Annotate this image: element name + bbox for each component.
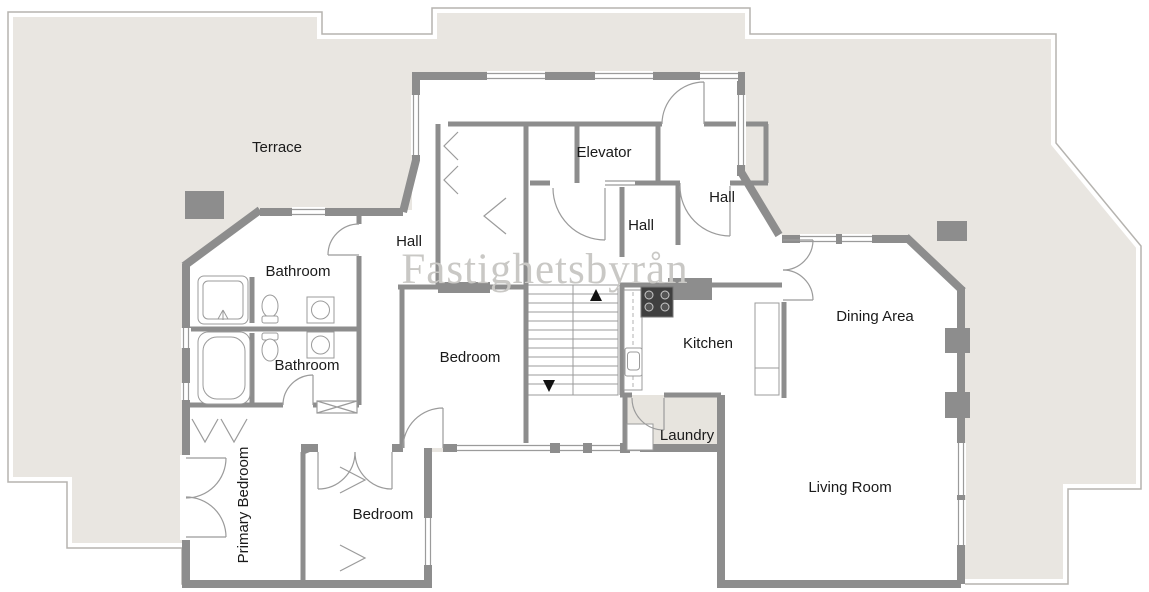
shower bbox=[198, 276, 248, 324]
kitchen-sink bbox=[625, 348, 642, 376]
elevator-door bbox=[605, 179, 635, 187]
room-label-hall-right: Hall bbox=[709, 189, 735, 206]
room-label-elevator: Elevator bbox=[576, 144, 631, 161]
room-label-primary-bedroom: Primary Bedroom bbox=[235, 447, 252, 564]
room-label-bathroom-bottom: Bathroom bbox=[274, 357, 339, 374]
room-label-hall-center: Hall bbox=[628, 217, 654, 234]
exterior-gap bbox=[432, 452, 717, 592]
floor-plan-canvas: Fastighetsbyrån Terrace Elevator Hall Ha… bbox=[0, 0, 1149, 592]
room-label-living-room: Living Room bbox=[808, 479, 891, 496]
room-label-bedroom-center: Bedroom bbox=[440, 349, 501, 366]
floor-plan: Fastighetsbyrån Terrace Elevator Hall Ha… bbox=[0, 0, 1149, 592]
room-label-laundry: Laundry bbox=[660, 427, 715, 444]
room-label-bedroom-bottom: Bedroom bbox=[353, 506, 414, 523]
room-label-kitchen: Kitchen bbox=[683, 335, 733, 352]
room-label-dining-area: Dining Area bbox=[836, 308, 914, 325]
room-label-bathroom-top: Bathroom bbox=[265, 263, 330, 280]
watermark-text: Fastighetsbyrån bbox=[401, 246, 688, 293]
laundry-appliance bbox=[627, 424, 653, 450]
bathtub bbox=[198, 332, 250, 404]
room-label-terrace: Terrace bbox=[252, 139, 302, 156]
room-label-hall-left: Hall bbox=[396, 233, 422, 250]
